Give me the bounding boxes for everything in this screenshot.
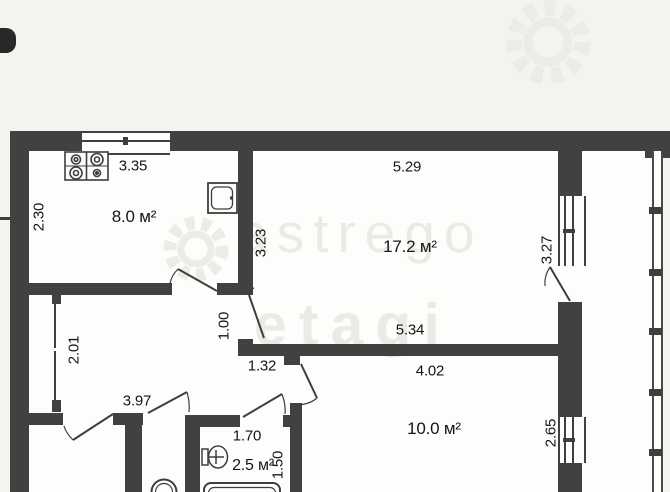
dim-living-width-top: 5.29	[393, 159, 421, 176]
room-label-bedroom: 10.0 м²	[407, 419, 461, 439]
dim-vestibule-width: 1.32	[248, 358, 276, 375]
dim-bedroom-height: 2.65	[543, 419, 560, 447]
dim-kitchen-width: 3.35	[119, 158, 147, 175]
room-label-living: 17.2 м²	[383, 237, 437, 257]
dim-closet-height: 2.01	[66, 336, 83, 364]
storage-room-door	[64, 414, 113, 440]
dim-bath-width: 1.70	[233, 428, 261, 445]
plan-linework	[0, 0, 670, 492]
bathtub-icon	[204, 483, 280, 492]
room-label-kitchen: 8.0 м²	[112, 207, 157, 227]
sink-icon	[208, 183, 237, 213]
washbasin-icon	[152, 480, 177, 492]
room-label-bathroom: 2.5 м²	[232, 457, 274, 475]
dim-bath-height: 1.50	[270, 451, 287, 479]
kitchen-door	[170, 269, 217, 291]
bathroom-door	[243, 394, 285, 417]
dim-hall-width: 3.97	[123, 393, 151, 410]
balcony-door	[545, 267, 570, 301]
toilet-icon	[202, 446, 228, 468]
nook-door	[148, 392, 189, 413]
dim-hall-opening: 1.00	[216, 312, 233, 340]
dim-living-width-bottom: 5.34	[396, 322, 424, 339]
dim-living-height-right: 3.27	[539, 236, 556, 264]
dim-kitchen-height: 2.30	[31, 203, 48, 231]
bedroom-door	[295, 364, 317, 405]
living-room-door	[249, 288, 264, 338]
dim-bedroom-width: 4.02	[416, 363, 444, 380]
dim-living-height-left: 3.23	[253, 229, 270, 257]
floor-plan: astrego etagi	[0, 0, 670, 492]
stove-icon	[65, 152, 108, 180]
